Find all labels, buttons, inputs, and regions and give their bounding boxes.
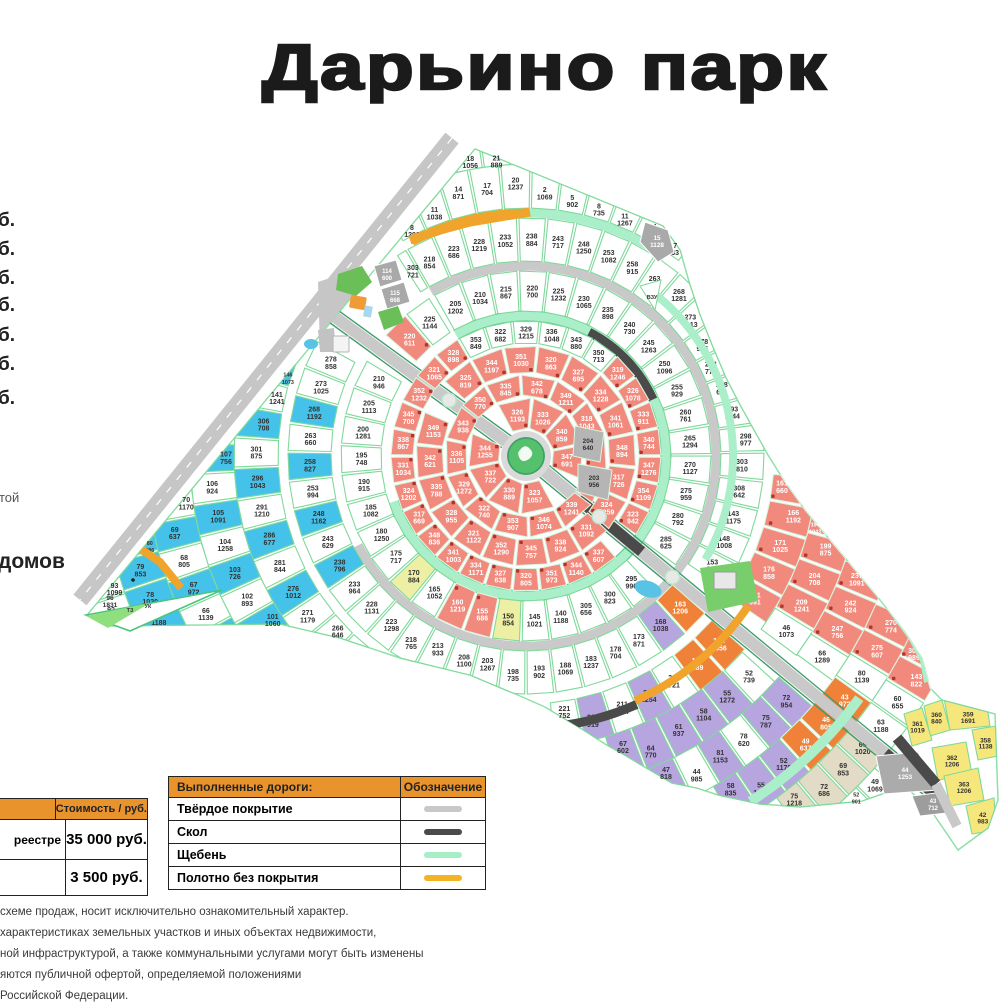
svg-text:161: 161 xyxy=(776,481,788,488)
svg-text:915: 915 xyxy=(358,486,370,493)
svg-text:1140: 1140 xyxy=(569,570,584,577)
svg-text:704: 704 xyxy=(610,654,622,661)
svg-text:328: 328 xyxy=(448,350,460,357)
svg-text:1253: 1253 xyxy=(898,774,913,781)
svg-text:1020: 1020 xyxy=(855,749,871,756)
svg-text:717: 717 xyxy=(390,558,402,565)
svg-text:810: 810 xyxy=(736,466,748,473)
svg-text:911: 911 xyxy=(638,419,649,426)
svg-text:258: 258 xyxy=(304,459,316,466)
svg-text:350: 350 xyxy=(474,397,486,404)
svg-text:349: 349 xyxy=(427,425,439,432)
svg-text:352: 352 xyxy=(495,543,507,550)
svg-text:1170: 1170 xyxy=(179,504,194,511)
svg-text:336: 336 xyxy=(546,329,558,336)
svg-text:1237: 1237 xyxy=(583,663,599,670)
svg-text:600: 600 xyxy=(382,276,393,282)
svg-text:347: 347 xyxy=(643,463,655,470)
svg-text:770: 770 xyxy=(474,404,486,411)
svg-text:204: 204 xyxy=(583,438,594,445)
svg-text:52: 52 xyxy=(853,793,859,799)
svg-text:146: 146 xyxy=(283,373,292,379)
svg-text:199: 199 xyxy=(820,544,832,551)
svg-text:1188: 1188 xyxy=(553,618,568,625)
svg-text:902: 902 xyxy=(566,202,578,209)
svg-text:854: 854 xyxy=(424,264,436,271)
svg-text:1241: 1241 xyxy=(269,399,285,406)
svg-text:44: 44 xyxy=(901,767,909,774)
svg-text:704: 704 xyxy=(481,190,493,197)
svg-text:335: 335 xyxy=(500,383,512,390)
svg-text:871: 871 xyxy=(453,194,465,201)
svg-text:160: 160 xyxy=(452,599,464,606)
svg-text:195: 195 xyxy=(356,453,368,460)
svg-text:640: 640 xyxy=(583,445,594,452)
svg-text:271: 271 xyxy=(302,610,314,617)
svg-text:607: 607 xyxy=(593,557,605,564)
svg-text:331: 331 xyxy=(397,463,409,470)
svg-text:343: 343 xyxy=(457,421,469,428)
svg-text:81: 81 xyxy=(716,750,724,757)
svg-text:756: 756 xyxy=(832,633,844,640)
svg-text:168: 168 xyxy=(655,619,667,626)
svg-text:1276: 1276 xyxy=(641,470,657,477)
svg-text:52: 52 xyxy=(745,671,753,678)
svg-text:721: 721 xyxy=(407,272,419,279)
svg-text:11: 11 xyxy=(621,213,629,220)
svg-text:678: 678 xyxy=(531,388,543,395)
svg-text:805: 805 xyxy=(520,580,532,587)
svg-text:281: 281 xyxy=(274,560,286,567)
svg-text:893: 893 xyxy=(241,601,253,608)
svg-text:1034: 1034 xyxy=(395,470,411,477)
svg-text:1021: 1021 xyxy=(527,621,543,628)
svg-text:102: 102 xyxy=(241,594,253,601)
svg-text:344: 344 xyxy=(486,360,498,367)
svg-text:333: 333 xyxy=(638,412,650,419)
svg-text:686: 686 xyxy=(476,616,488,623)
svg-text:827: 827 xyxy=(304,466,316,473)
svg-text:1281: 1281 xyxy=(355,434,371,441)
svg-text:107: 107 xyxy=(220,452,232,459)
svg-text:1290: 1290 xyxy=(493,550,509,557)
svg-text:1078: 1078 xyxy=(625,395,641,402)
svg-text:198: 198 xyxy=(507,669,519,676)
svg-text:787: 787 xyxy=(760,722,772,729)
svg-text:915: 915 xyxy=(627,269,639,276)
svg-text:668: 668 xyxy=(390,298,401,304)
svg-text:150: 150 xyxy=(502,613,514,620)
svg-text:819: 819 xyxy=(460,382,472,389)
svg-text:104: 104 xyxy=(219,539,231,546)
svg-text:1192: 1192 xyxy=(307,414,322,421)
svg-text:840: 840 xyxy=(931,719,942,726)
svg-text:68: 68 xyxy=(180,555,188,562)
svg-text:691: 691 xyxy=(561,461,573,468)
svg-text:1082: 1082 xyxy=(363,512,379,519)
svg-text:203: 203 xyxy=(482,658,494,665)
svg-text:78: 78 xyxy=(740,734,748,741)
svg-text:21: 21 xyxy=(493,155,501,162)
svg-text:173: 173 xyxy=(633,634,645,641)
svg-text:1052: 1052 xyxy=(498,242,514,249)
svg-text:339: 339 xyxy=(566,502,578,509)
svg-text:889: 889 xyxy=(503,495,515,502)
svg-text:1192: 1192 xyxy=(786,517,801,524)
svg-text:17: 17 xyxy=(483,183,491,190)
svg-text:337: 337 xyxy=(593,550,605,557)
svg-text:1232: 1232 xyxy=(551,296,567,303)
svg-text:1019: 1019 xyxy=(910,728,925,735)
svg-text:1298: 1298 xyxy=(384,626,400,633)
svg-text:1091: 1091 xyxy=(849,580,865,587)
svg-text:218: 218 xyxy=(424,256,436,263)
svg-text:660: 660 xyxy=(305,440,317,447)
svg-text:898: 898 xyxy=(448,357,460,364)
svg-text:973: 973 xyxy=(546,578,558,585)
svg-text:11: 11 xyxy=(431,207,439,214)
svg-text:253: 253 xyxy=(603,250,615,257)
svg-text:318: 318 xyxy=(581,416,593,423)
svg-text:66: 66 xyxy=(818,650,826,657)
svg-text:637: 637 xyxy=(169,534,181,541)
svg-text:105: 105 xyxy=(212,510,224,517)
svg-text:80: 80 xyxy=(147,541,153,547)
svg-text:347: 347 xyxy=(561,454,573,461)
svg-text:349: 349 xyxy=(560,393,572,400)
svg-text:180: 180 xyxy=(376,529,388,536)
svg-text:1034: 1034 xyxy=(472,299,488,306)
svg-text:621: 621 xyxy=(424,462,436,469)
svg-text:210: 210 xyxy=(373,376,385,383)
svg-text:342: 342 xyxy=(531,381,543,388)
svg-text:956: 956 xyxy=(589,482,600,489)
svg-text:337: 337 xyxy=(484,470,496,477)
svg-text:722: 722 xyxy=(484,478,496,485)
svg-text:243: 243 xyxy=(552,236,564,243)
svg-text:238: 238 xyxy=(334,560,346,567)
svg-text:67: 67 xyxy=(190,582,198,589)
svg-text:209: 209 xyxy=(796,600,808,607)
svg-text:324: 324 xyxy=(403,488,415,495)
svg-text:223: 223 xyxy=(386,619,398,626)
svg-text:1206: 1206 xyxy=(957,788,972,795)
svg-text:67: 67 xyxy=(619,741,627,748)
svg-text:1060: 1060 xyxy=(265,621,281,628)
svg-text:1206: 1206 xyxy=(945,762,960,769)
svg-text:238: 238 xyxy=(526,234,538,241)
svg-text:258: 258 xyxy=(627,262,639,269)
svg-text:1219: 1219 xyxy=(450,607,466,614)
svg-text:183: 183 xyxy=(585,656,597,663)
svg-text:326: 326 xyxy=(627,388,639,395)
svg-text:717: 717 xyxy=(552,243,564,250)
svg-text:52: 52 xyxy=(780,758,788,765)
svg-text:225: 225 xyxy=(424,316,436,323)
svg-text:178: 178 xyxy=(610,647,622,654)
svg-text:1139: 1139 xyxy=(198,615,213,622)
svg-text:853: 853 xyxy=(135,571,147,578)
svg-text:329: 329 xyxy=(458,481,470,488)
svg-text:983: 983 xyxy=(977,819,988,826)
svg-text:194: 194 xyxy=(811,523,820,529)
svg-text:345: 345 xyxy=(403,412,415,419)
svg-text:80: 80 xyxy=(858,670,866,677)
svg-text:255: 255 xyxy=(671,384,683,391)
svg-text:1218: 1218 xyxy=(787,801,803,808)
svg-text:70: 70 xyxy=(182,497,190,504)
svg-text:853: 853 xyxy=(837,770,849,777)
svg-text:338: 338 xyxy=(555,539,567,546)
svg-text:320: 320 xyxy=(545,357,557,364)
svg-text:792: 792 xyxy=(672,520,684,527)
svg-text:353: 353 xyxy=(507,518,519,525)
svg-text:233: 233 xyxy=(499,235,511,242)
svg-text:ТЗ: ТЗ xyxy=(127,608,134,614)
svg-text:93: 93 xyxy=(111,583,119,590)
svg-text:875: 875 xyxy=(251,454,263,461)
svg-text:1232: 1232 xyxy=(411,395,427,402)
svg-text:1069: 1069 xyxy=(537,194,553,201)
svg-text:620: 620 xyxy=(738,741,750,748)
svg-text:64: 64 xyxy=(647,746,655,753)
svg-text:335: 335 xyxy=(431,484,443,491)
svg-text:325: 325 xyxy=(460,375,472,382)
svg-text:350: 350 xyxy=(593,350,605,357)
svg-text:1246: 1246 xyxy=(610,374,626,381)
svg-text:756: 756 xyxy=(220,459,232,466)
svg-text:295: 295 xyxy=(625,576,637,583)
svg-text:1069: 1069 xyxy=(558,670,574,677)
svg-text:748: 748 xyxy=(356,460,368,467)
svg-text:326: 326 xyxy=(512,410,524,417)
svg-text:8: 8 xyxy=(410,225,414,232)
svg-text:170: 170 xyxy=(408,570,420,577)
svg-text:1202: 1202 xyxy=(401,495,417,502)
svg-text:268: 268 xyxy=(308,407,320,414)
svg-text:823: 823 xyxy=(604,599,616,606)
svg-text:338: 338 xyxy=(397,437,409,444)
svg-text:237: 237 xyxy=(851,573,863,580)
svg-text:203: 203 xyxy=(589,475,600,482)
svg-text:115: 115 xyxy=(390,291,400,297)
svg-text:69: 69 xyxy=(839,763,847,770)
svg-text:266: 266 xyxy=(332,625,344,632)
svg-text:106: 106 xyxy=(206,481,218,488)
svg-text:1188: 1188 xyxy=(873,727,888,734)
svg-text:1144: 1144 xyxy=(422,324,437,331)
svg-text:818: 818 xyxy=(660,774,672,781)
svg-text:1025: 1025 xyxy=(772,547,788,554)
svg-text:1113: 1113 xyxy=(362,408,377,415)
svg-text:602: 602 xyxy=(617,748,629,755)
svg-text:1211: 1211 xyxy=(558,400,573,407)
svg-text:324: 324 xyxy=(601,502,613,509)
svg-text:774: 774 xyxy=(885,627,897,634)
svg-text:291: 291 xyxy=(256,505,268,512)
svg-text:268: 268 xyxy=(673,289,685,296)
svg-text:901: 901 xyxy=(852,800,861,806)
svg-text:1109: 1109 xyxy=(636,495,651,502)
svg-text:1057: 1057 xyxy=(527,497,543,504)
svg-text:1008: 1008 xyxy=(716,543,732,550)
svg-text:344: 344 xyxy=(479,446,491,453)
svg-text:250: 250 xyxy=(659,361,671,368)
svg-text:1073: 1073 xyxy=(779,632,795,639)
svg-text:193: 193 xyxy=(533,666,545,673)
svg-text:306: 306 xyxy=(258,418,270,425)
svg-text:1025: 1025 xyxy=(313,388,329,395)
svg-text:744: 744 xyxy=(643,444,655,451)
svg-text:1012: 1012 xyxy=(285,593,301,600)
svg-text:937: 937 xyxy=(673,731,685,738)
svg-text:243: 243 xyxy=(322,536,334,543)
svg-text:1162: 1162 xyxy=(311,518,326,525)
svg-text:329: 329 xyxy=(520,326,532,333)
svg-text:260: 260 xyxy=(680,409,692,416)
svg-text:354: 354 xyxy=(638,488,650,495)
svg-text:340: 340 xyxy=(643,437,655,444)
svg-text:340: 340 xyxy=(556,429,568,436)
svg-text:270: 270 xyxy=(885,620,897,627)
svg-text:248: 248 xyxy=(578,242,590,249)
svg-text:1048: 1048 xyxy=(544,336,560,343)
svg-text:296: 296 xyxy=(252,476,264,483)
svg-text:280: 280 xyxy=(672,513,684,520)
svg-text:327: 327 xyxy=(572,369,584,376)
svg-text:69: 69 xyxy=(171,527,179,534)
svg-text:858: 858 xyxy=(325,364,337,371)
svg-text:321: 321 xyxy=(468,530,480,537)
svg-text:322: 322 xyxy=(478,505,490,512)
svg-text:205: 205 xyxy=(450,301,462,308)
svg-text:330: 330 xyxy=(503,488,515,495)
svg-text:225: 225 xyxy=(553,289,565,296)
svg-text:58: 58 xyxy=(727,783,735,790)
svg-text:253: 253 xyxy=(307,486,319,493)
svg-text:331: 331 xyxy=(581,524,593,531)
svg-text:171: 171 xyxy=(774,540,786,547)
svg-text:660: 660 xyxy=(776,488,788,495)
svg-text:867: 867 xyxy=(500,294,512,301)
svg-text:175: 175 xyxy=(390,551,402,558)
svg-text:351: 351 xyxy=(546,571,558,578)
svg-text:822: 822 xyxy=(911,681,923,688)
svg-text:686: 686 xyxy=(448,253,460,260)
svg-text:761: 761 xyxy=(680,417,692,424)
svg-text:63: 63 xyxy=(877,720,885,727)
svg-text:60: 60 xyxy=(894,696,902,703)
svg-text:1153: 1153 xyxy=(426,432,441,439)
svg-text:933: 933 xyxy=(432,650,444,657)
svg-text:205: 205 xyxy=(363,401,375,408)
svg-text:1272: 1272 xyxy=(456,489,472,496)
svg-text:1219: 1219 xyxy=(471,246,487,253)
svg-text:334: 334 xyxy=(595,389,607,396)
svg-text:353: 353 xyxy=(470,337,482,344)
svg-text:228: 228 xyxy=(366,601,378,608)
svg-text:1074: 1074 xyxy=(536,524,552,531)
svg-text:323: 323 xyxy=(529,490,541,497)
svg-text:305: 305 xyxy=(580,603,592,610)
svg-text:342: 342 xyxy=(424,455,436,462)
svg-text:1056: 1056 xyxy=(463,163,479,170)
svg-text:166: 166 xyxy=(787,510,799,517)
svg-text:686: 686 xyxy=(818,791,830,798)
svg-text:220: 220 xyxy=(404,333,416,340)
svg-text:348: 348 xyxy=(428,532,440,539)
svg-text:629: 629 xyxy=(322,543,334,550)
svg-text:712: 712 xyxy=(928,806,939,812)
svg-text:223: 223 xyxy=(448,246,460,253)
svg-text:1202: 1202 xyxy=(448,308,464,315)
svg-text:228: 228 xyxy=(473,239,485,246)
svg-text:165: 165 xyxy=(429,587,441,594)
svg-text:1026: 1026 xyxy=(535,419,551,426)
svg-text:55: 55 xyxy=(723,691,731,698)
svg-text:1250: 1250 xyxy=(576,249,592,256)
svg-text:1052: 1052 xyxy=(427,594,443,601)
svg-text:611: 611 xyxy=(404,341,415,348)
svg-text:656: 656 xyxy=(580,610,592,617)
svg-text:924: 924 xyxy=(555,547,567,554)
svg-text:1139: 1139 xyxy=(854,678,869,685)
svg-text:607: 607 xyxy=(871,652,883,659)
svg-text:303: 303 xyxy=(407,265,419,272)
svg-text:322: 322 xyxy=(494,329,506,336)
svg-text:218: 218 xyxy=(405,637,417,644)
svg-text:889: 889 xyxy=(491,163,503,170)
svg-text:1171: 1171 xyxy=(468,570,483,577)
svg-text:114: 114 xyxy=(382,269,392,275)
svg-text:924: 924 xyxy=(845,608,857,615)
svg-text:1175: 1175 xyxy=(726,518,741,525)
svg-text:188: 188 xyxy=(560,662,572,669)
svg-text:1105: 1105 xyxy=(449,458,464,465)
svg-text:1289: 1289 xyxy=(814,658,830,665)
svg-text:770: 770 xyxy=(645,753,657,760)
svg-text:300: 300 xyxy=(604,591,616,598)
svg-text:341: 341 xyxy=(610,415,622,422)
svg-text:1122: 1122 xyxy=(466,538,481,545)
svg-text:308: 308 xyxy=(733,486,745,493)
svg-text:1272: 1272 xyxy=(719,698,735,705)
svg-text:726: 726 xyxy=(229,574,241,581)
svg-text:1092: 1092 xyxy=(579,532,595,539)
svg-text:320: 320 xyxy=(520,573,532,580)
svg-text:321: 321 xyxy=(428,367,440,374)
svg-text:49: 49 xyxy=(871,779,879,786)
svg-text:200: 200 xyxy=(357,426,369,433)
svg-text:859: 859 xyxy=(556,436,568,443)
svg-text:2: 2 xyxy=(543,187,547,194)
svg-text:1127: 1127 xyxy=(683,469,698,476)
svg-text:43: 43 xyxy=(841,694,849,701)
svg-text:УК: УК xyxy=(145,604,152,610)
svg-text:49: 49 xyxy=(802,738,810,745)
svg-text:351: 351 xyxy=(515,354,527,361)
svg-text:8: 8 xyxy=(597,204,601,211)
svg-text:242: 242 xyxy=(845,600,857,607)
svg-text:735: 735 xyxy=(507,676,519,683)
svg-text:348: 348 xyxy=(616,445,628,452)
svg-text:1065: 1065 xyxy=(576,303,592,310)
svg-text:1281: 1281 xyxy=(671,296,687,303)
svg-text:75: 75 xyxy=(790,794,798,801)
svg-text:875: 875 xyxy=(820,551,832,558)
svg-text:273: 273 xyxy=(315,381,327,388)
svg-text:235: 235 xyxy=(602,307,614,314)
